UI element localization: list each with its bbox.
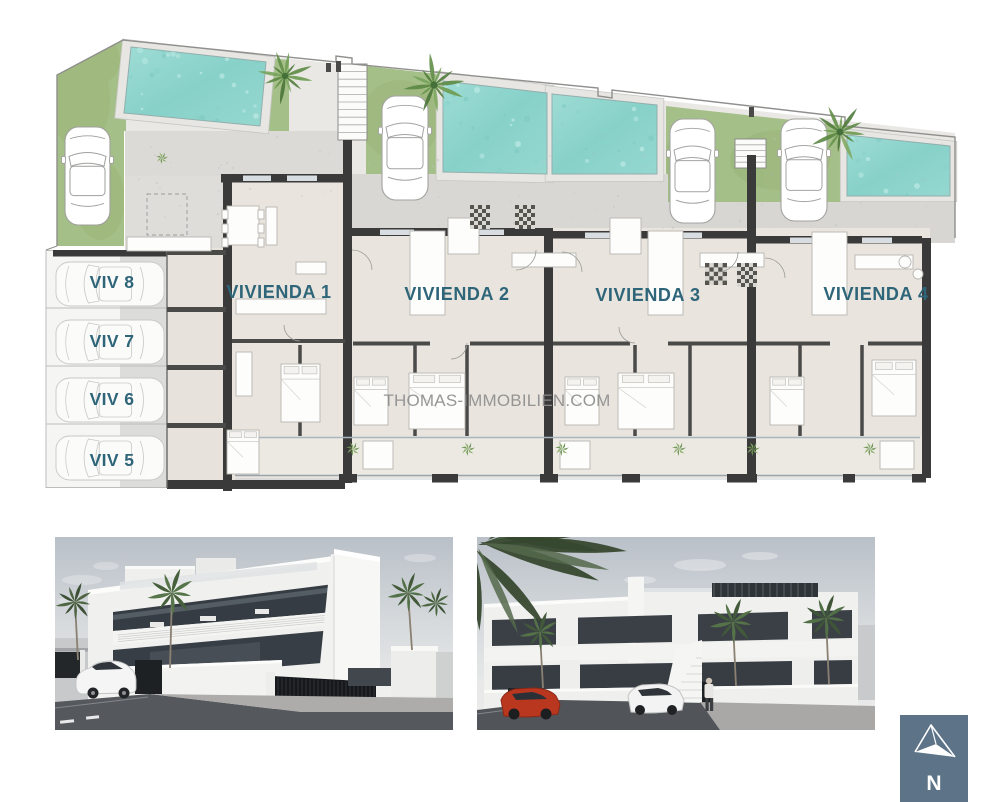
svg-text:VIVIENDA 4: VIVIENDA 4 — [823, 284, 928, 304]
svg-text:VIV 5: VIV 5 — [90, 450, 135, 470]
svg-text:VIVIENDA 3: VIVIENDA 3 — [595, 285, 700, 305]
svg-text:VIVIENDA 2: VIVIENDA 2 — [404, 284, 509, 304]
svg-text:THOMAS-IMMOBILIEN.COM: THOMAS-IMMOBILIEN.COM — [383, 391, 610, 410]
svg-text:VIVIENDA 1: VIVIENDA 1 — [226, 282, 331, 302]
svg-text:N: N — [926, 772, 941, 795]
svg-text:VIV 8: VIV 8 — [90, 272, 135, 292]
svg-text:VIV 6: VIV 6 — [90, 389, 135, 409]
svg-text:VIV 7: VIV 7 — [90, 331, 135, 351]
